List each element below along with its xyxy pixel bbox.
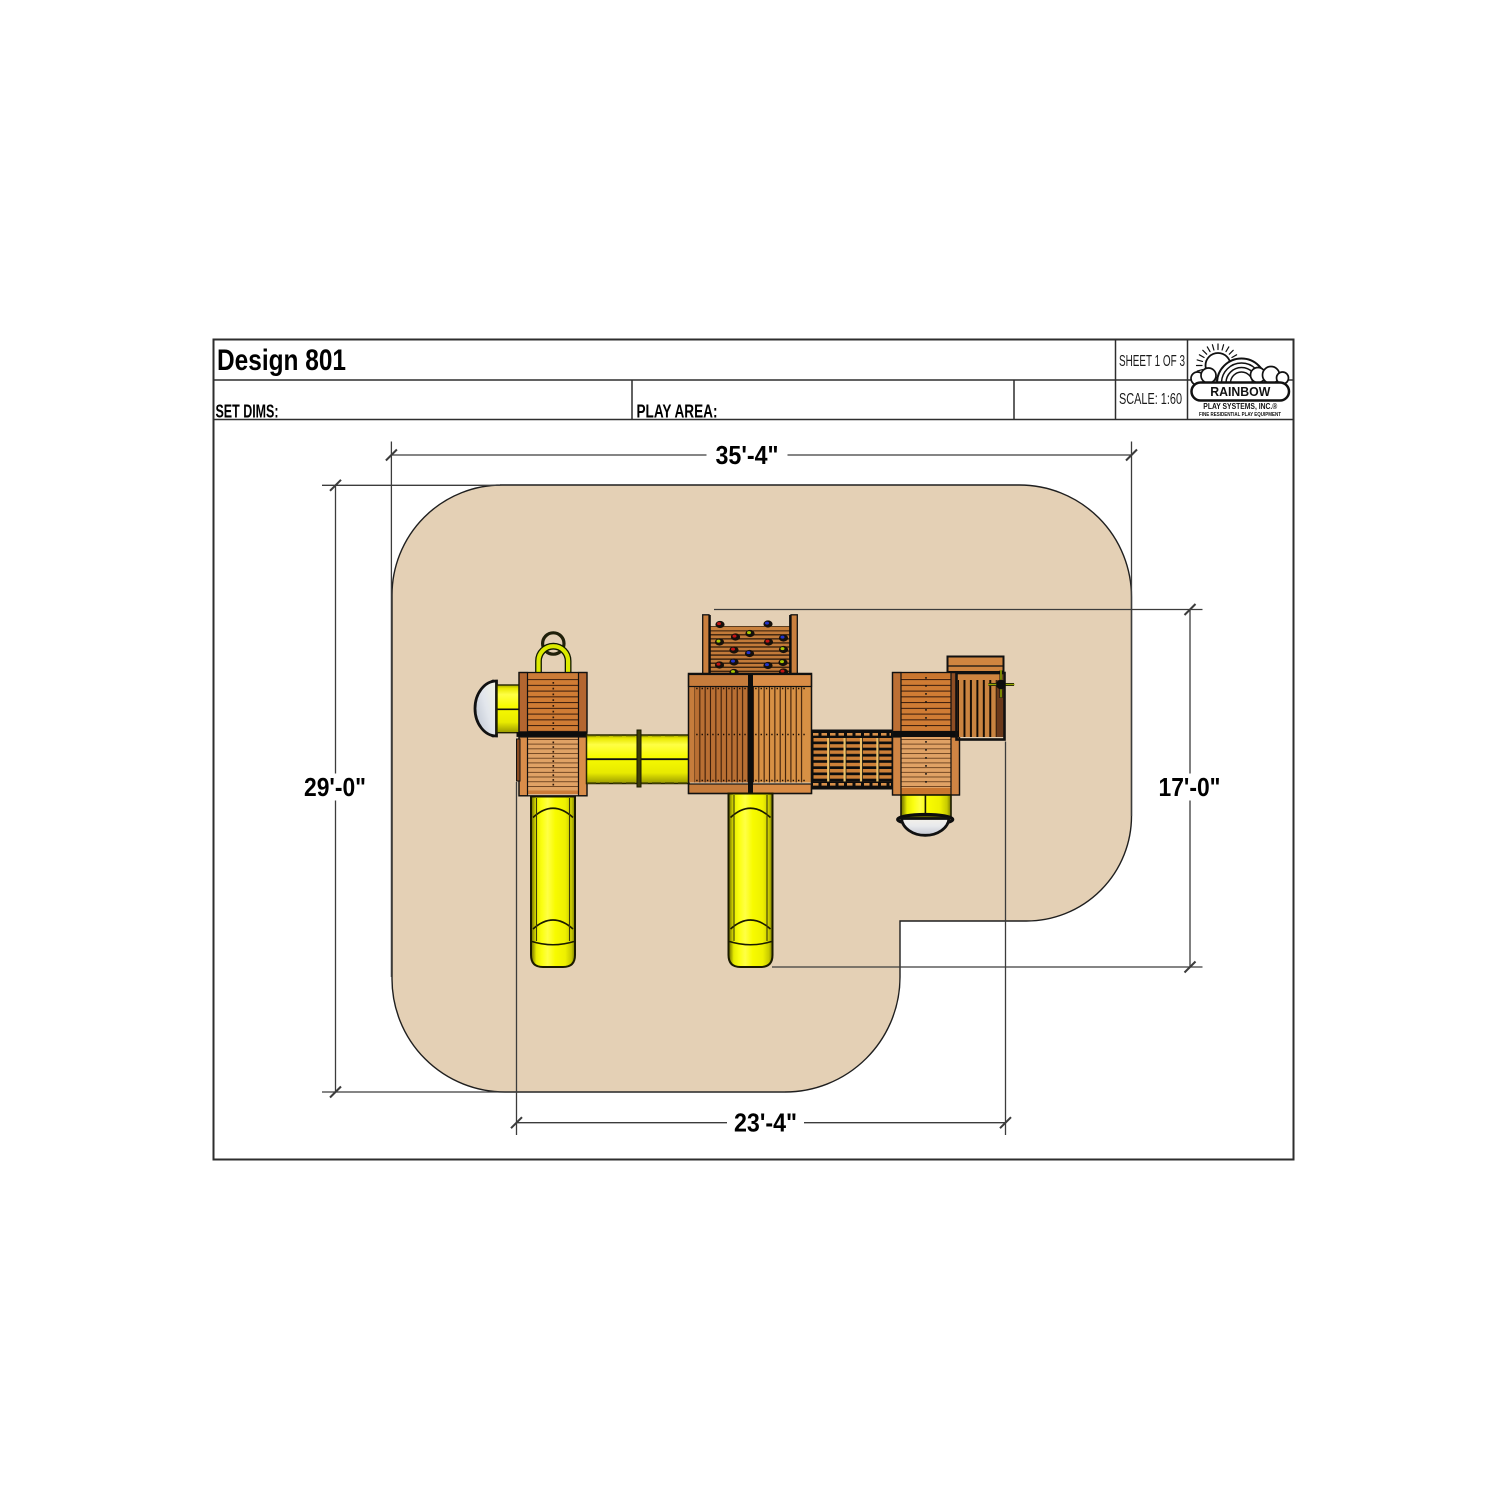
svg-text:SCALE: 1:60: SCALE: 1:60 [1119, 391, 1182, 408]
svg-text:PLAY SYSTEMS, INC.®: PLAY SYSTEMS, INC.® [1203, 401, 1278, 411]
svg-text:29'-0": 29'-0" [304, 772, 366, 802]
svg-text:PLAY AREA:: PLAY AREA: [637, 402, 718, 422]
svg-text:SHEET 1 OF 3: SHEET 1 OF 3 [1119, 353, 1185, 370]
svg-text:Design 801: Design 801 [217, 344, 346, 377]
svg-text:23'-4": 23'-4" [734, 1108, 797, 1138]
svg-text:SET DIMS:: SET DIMS: [216, 402, 279, 422]
svg-text:35'-4": 35'-4" [716, 440, 779, 470]
svg-text:FINE RESIDENTIAL PLAY EQUIPMEN: FINE RESIDENTIAL PLAY EQUIPMENT [1199, 412, 1281, 418]
svg-text:17'-0": 17'-0" [1159, 772, 1221, 802]
svg-text:RAINBOW: RAINBOW [1210, 384, 1271, 399]
